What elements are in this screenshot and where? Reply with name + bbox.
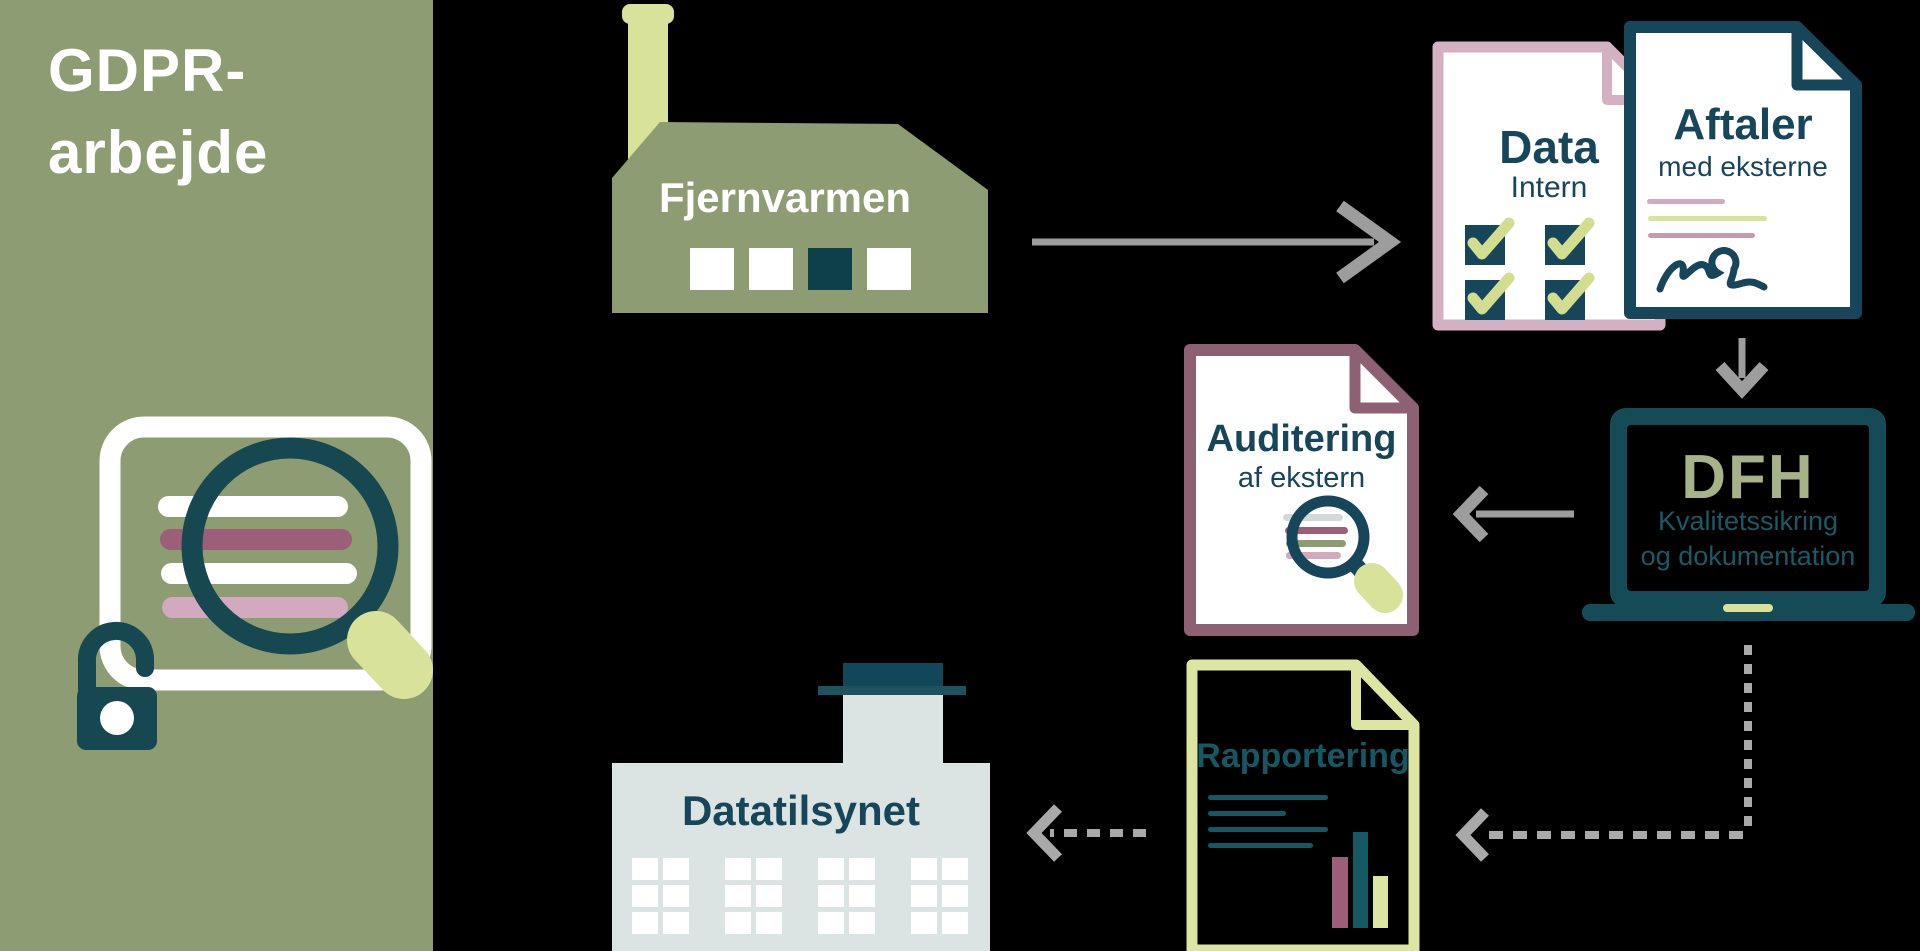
factory-window-1 [690,248,734,290]
bar-teal [1353,832,1368,928]
tower-cap-brim [818,686,966,695]
dfh-subtitle-line2: og dokumentation [1610,541,1886,572]
report-line-4 [1208,843,1313,848]
report-line-3 [1208,827,1328,832]
node-rapportering: Rapportering [1192,665,1414,950]
factory-building-icon [495,0,1095,320]
gdpr-workflow-diagram: GDPR-arbejde [0,0,1920,951]
report-line-2 [1208,811,1286,816]
contract-line-3 [1648,233,1755,238]
aftaler-subtitle: med eksterne [1630,151,1856,183]
bar-mauve [1332,857,1348,928]
arrow-fjernvarmen-to-data-icon [1028,198,1400,290]
audit-magnifier-handle [1372,581,1385,595]
dfh-subtitle-line1: Kvalitetssikring [1610,506,1886,537]
sidebar-panel: GDPR-arbejde [0,0,433,951]
padlock-keyhole [100,701,134,735]
factory-window-4 [867,248,911,290]
datatilsynet-label: Datatilsynet [612,787,990,835]
fjernvarmen-label: Fjernvarmen [610,174,960,222]
dashed-arrow-rapportering-to-datatilsynet-icon [1024,800,1154,866]
arrow-head [1463,812,1485,858]
node-datatilsynet: Datatilsynet [612,663,990,951]
arrow-aftaler-to-dfh-icon [1712,336,1776,398]
document-fold-corner [1355,350,1413,408]
auditering-subtitle: af ekstern [1190,462,1413,495]
page-title-line2: arbejde [48,119,268,186]
magnifier-handle [376,640,404,670]
rapportering-title: Rapportering [1192,737,1414,776]
report-bar-chart-document-icon [1192,665,1414,950]
auditering-title: Auditering [1190,418,1413,461]
node-dfh: DFH Kvalitetssikring og dokumentation [1578,404,1918,624]
dashed-arrow-dfh-to-rapportering-icon [1455,640,1765,865]
contract-line-2 [1648,216,1767,221]
page-title-line1: GDPR- [48,37,246,104]
node-aftaler: Aftaler med eksterne [1630,27,1856,313]
document-fold-corner [1797,27,1856,85]
page-title: GDPR-arbejde [48,30,268,194]
node-fjernvarmen: Fjernvarmen [495,0,1095,320]
node-auditering: Auditering af ekstern [1190,350,1413,630]
aftaler-title: Aftaler [1630,100,1856,150]
dfh-title: DFH [1610,442,1886,513]
document-magnifier-padlock-icon [40,350,440,760]
doc-line-4 [162,597,348,618]
arrow-head [1034,808,1058,858]
tower [843,695,943,765]
laptop-base-notch [1723,604,1773,612]
report-line-1 [1208,795,1328,800]
bar-green [1373,876,1388,928]
document-fold-corner [1356,665,1414,725]
contract-line-1 [1647,199,1725,204]
factory-window-2 [749,248,793,290]
factory-window-3 [808,248,852,290]
arrow-dfh-to-auditering-icon [1452,484,1578,546]
